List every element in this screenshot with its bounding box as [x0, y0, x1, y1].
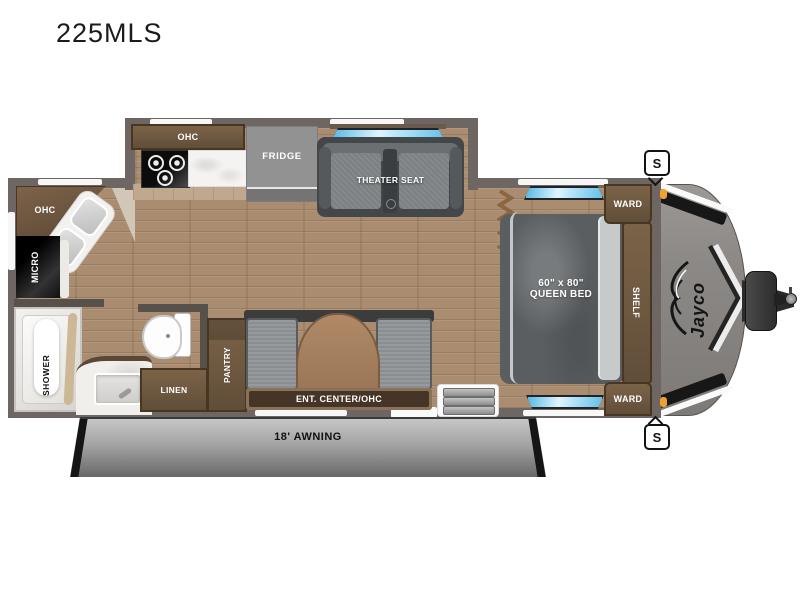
stove-burner-icon	[169, 155, 185, 171]
step	[443, 406, 495, 415]
bedroom-window-top	[524, 186, 604, 200]
page-title: 225MLS	[56, 18, 163, 49]
pantry-label: PANTRY	[222, 320, 232, 410]
wardrobe-top-label: WARD	[606, 186, 650, 222]
fridge: FRIDGE	[246, 126, 318, 202]
awning-label: 18' AWNING	[70, 431, 546, 443]
toilet-flush-icon	[166, 334, 170, 338]
fridge-label: FRIDGE	[247, 127, 317, 185]
kitchen-counter	[188, 150, 248, 187]
shower-label-pill: SHOWER	[34, 319, 59, 396]
fridge-base	[247, 187, 317, 201]
linen-cabinet: LINEN	[140, 368, 208, 412]
ent-center-label: ENT. CENTER/OHC	[246, 388, 432, 410]
compartment-door	[38, 179, 102, 185]
window-sill-strip	[523, 410, 607, 416]
speaker-symbol-bottom: S	[644, 424, 670, 450]
bath-divider-wall	[14, 299, 104, 307]
theater-seat-label: THEATER SEAT	[317, 175, 464, 185]
awning-end-cap	[70, 419, 87, 477]
pantry-cabinet: PANTRY	[207, 318, 247, 412]
stove-burner-icon	[157, 170, 173, 186]
wardrobe-bottom: WARD	[604, 382, 652, 416]
jayco-logo-text: Jayco	[688, 260, 709, 338]
stove-burner-icon	[148, 155, 164, 171]
compartment-door	[8, 212, 15, 270]
toilet-bowl	[142, 315, 182, 359]
bed-label: 60" x 80" QUEEN BED	[508, 278, 614, 300]
bath-wall-horizontal	[138, 304, 208, 312]
step	[443, 388, 495, 397]
marker-light-icon	[660, 397, 667, 407]
bedroom-window-bottom	[526, 395, 604, 409]
bedroom-window-bottom-glass	[528, 397, 602, 407]
wardrobe-bottom-label: WARD	[606, 384, 650, 414]
entry-steps	[438, 385, 498, 416]
marker-light-icon	[660, 189, 667, 199]
window-sill-strip	[255, 410, 347, 416]
stove-cooktop	[141, 150, 190, 188]
shelf-cabinet: SHELF	[622, 222, 652, 384]
awning: 18' AWNING	[70, 417, 546, 477]
cupholder-icon	[386, 199, 396, 209]
shower-label: SHOWER	[41, 319, 51, 396]
front-cap-chevron	[704, 238, 748, 358]
speaker-letter: S	[653, 430, 662, 445]
dinette-bench	[246, 318, 298, 390]
wardrobe-top: WARD	[604, 184, 652, 224]
microwave-label: MICRO	[30, 236, 40, 298]
floorplan-canvas: 225MLS Jayco OHC	[0, 0, 800, 600]
step	[443, 397, 495, 406]
shelf-label: SHELF	[631, 224, 641, 382]
dinette-bench	[376, 318, 432, 390]
microwave: MICRO	[16, 236, 60, 298]
vanity-sink-bowl	[94, 373, 142, 405]
tongue-jack-wheel-icon	[785, 293, 797, 305]
kitchen-ohc-label: OHC	[133, 126, 243, 148]
bed-type-label: QUEEN BED	[508, 289, 614, 300]
counter-edge-strip	[60, 240, 69, 298]
theater-seat: THEATER SEAT	[317, 137, 464, 217]
ent-center-bar: ENT. CENTER/OHC	[246, 388, 432, 410]
corner-ohc-label: OHC	[19, 205, 71, 215]
bed-size-label: 60" x 80"	[508, 278, 614, 289]
shower: SHOWER	[14, 307, 82, 412]
speaker-letter: S	[653, 156, 662, 171]
compartment-door	[518, 179, 608, 185]
kitchen-ohc-cabinet: OHC	[131, 124, 245, 150]
tongue-jack-pin	[789, 287, 792, 293]
propane-tank-cover	[745, 271, 777, 331]
awning-end-cap	[528, 419, 545, 477]
linen-label: LINEN	[142, 370, 206, 410]
bedroom-window-top-glass	[526, 188, 602, 198]
